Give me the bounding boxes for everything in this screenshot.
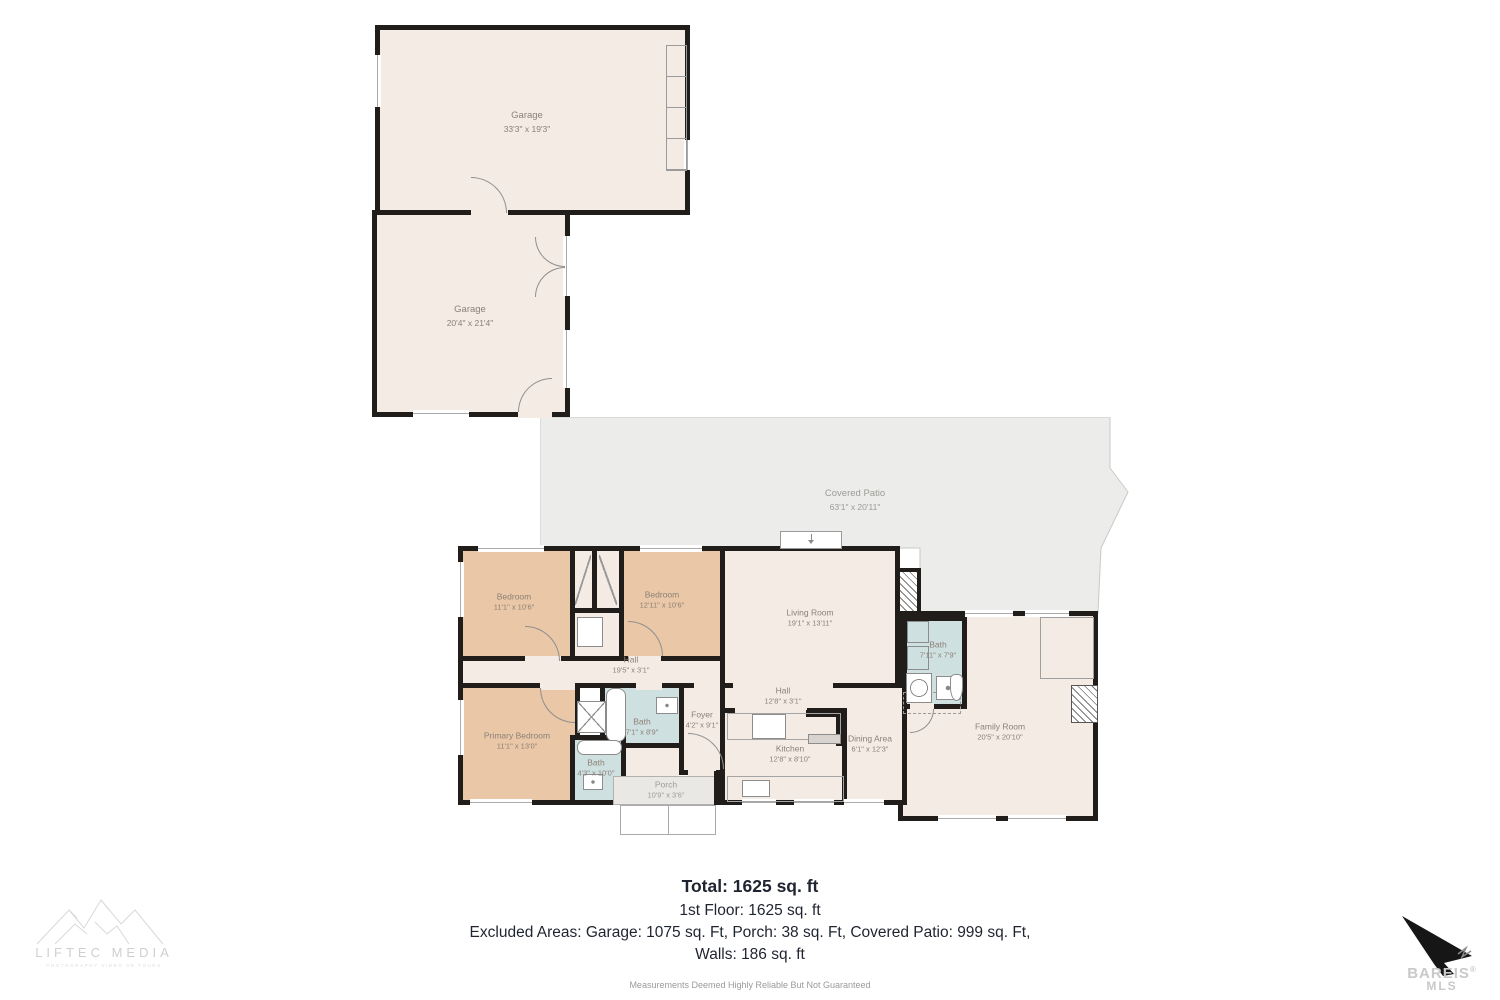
- fireplace: [1071, 685, 1098, 723]
- shower-tub: [577, 740, 622, 755]
- room-label-covered-patio: Covered Patio63'1" x 20'11": [825, 487, 885, 513]
- room-label-foyer: Foyer4'2" x 9'1": [686, 708, 719, 731]
- bifold-door: [575, 555, 591, 605]
- kitchen-sink: [742, 780, 770, 797]
- room-label-garage-lower: Garage20'4" x 21'4": [447, 303, 494, 329]
- window: [470, 799, 532, 806]
- door-opening: [688, 769, 716, 776]
- room-label-bath-a: Bath7'1" x 8'9": [626, 715, 659, 738]
- window: [640, 545, 702, 552]
- sliding-door: [780, 531, 842, 549]
- closet-cabinet: [577, 617, 603, 647]
- room-label-primary-bedroom: Primary Bedroom11'1" x 13'0": [484, 729, 550, 752]
- stove: [752, 714, 786, 739]
- total-area: Total: 1625 sq. ft: [0, 876, 1500, 897]
- bareis-mls-logo: BAREIS® MLS: [1396, 914, 1488, 993]
- hall-floor: [626, 748, 679, 776]
- room-label-hall-b: Hall12'8" x 3'1": [765, 684, 802, 707]
- counter-peninsula: [808, 734, 841, 744]
- liftec-media-logo: LIFTEC MEDIA PHOTOGRAPHY VIDEO 3D TOURS: [26, 892, 182, 968]
- closet-partition: [572, 608, 622, 613]
- disclaimer: Measurements Deemed Highly Reliable But …: [0, 980, 1500, 990]
- room-label-bedroom-b: Bedroom12'11" x 10'6": [640, 588, 685, 611]
- built-in: [1040, 617, 1094, 679]
- arrow-down-icon: [808, 540, 814, 544]
- room-label-living-room: Living Room19'1" x 13'11": [786, 606, 833, 629]
- linen-closet: [577, 701, 606, 733]
- garage-shelving: [666, 45, 687, 171]
- door-opening: [636, 681, 662, 690]
- room-label-bath-c: Bath7'11" x 7'9": [920, 638, 956, 661]
- mountains-icon: [29, 892, 179, 948]
- window: [478, 545, 544, 552]
- floor-plan: Garage33'3" x 19'3" Garage20'4" x 21'4" …: [0, 0, 1500, 1000]
- porch-side-wall: [714, 771, 725, 805]
- window: [413, 410, 469, 417]
- excluded-areas: Excluded Areas: Garage: 1075 sq. Ft, Por…: [0, 924, 1500, 942]
- window: [457, 562, 464, 617]
- first-floor-area: 1st Floor: 1625 sq. ft: [0, 902, 1500, 920]
- window: [1025, 610, 1069, 617]
- sink: [656, 697, 678, 714]
- walls-area: Walls: 186 sq. ft: [0, 946, 1500, 964]
- shower: [906, 673, 932, 703]
- toilet: [950, 674, 963, 701]
- entry-steps: [620, 805, 716, 835]
- bifold-door: [599, 555, 617, 605]
- area-summary: Total: 1625 sq. ft 1st Floor: 1625 sq. f…: [0, 876, 1500, 990]
- window: [1008, 815, 1066, 822]
- closet-partition: [592, 550, 597, 610]
- room-label-hall-a: Hall19'5" x 3'1": [613, 653, 650, 676]
- room-label-family-room: Family Room20'5" x 20'10": [975, 720, 1025, 743]
- room-label-bedroom-a: Bedroom11'1" x 10'6": [494, 590, 535, 613]
- window: [938, 815, 996, 822]
- room-label-bath-b: Bath4'3" x 10'0": [578, 756, 615, 779]
- window: [374, 55, 381, 107]
- liftec-media-name: LIFTEC MEDIA: [26, 945, 182, 960]
- liftec-media-tagline: PHOTOGRAPHY VIDEO 3D TOURS: [26, 963, 182, 968]
- room-label-porch: Porch10'9" x 3'6": [648, 778, 685, 801]
- opening: [842, 688, 851, 708]
- window: [965, 610, 1013, 617]
- window: [844, 799, 884, 806]
- room-label-kitchen: Kitchen12'8" x 8'10": [769, 742, 810, 765]
- fireplace: [896, 568, 921, 615]
- opening: [694, 681, 720, 690]
- window: [457, 700, 464, 755]
- bathtub: [606, 688, 626, 742]
- window: [563, 330, 570, 388]
- room-label-garage-upper: Garage33'3" x 19'3": [504, 109, 551, 135]
- room-label-dining-area: Dining Area6'1" x 12'3": [848, 732, 892, 755]
